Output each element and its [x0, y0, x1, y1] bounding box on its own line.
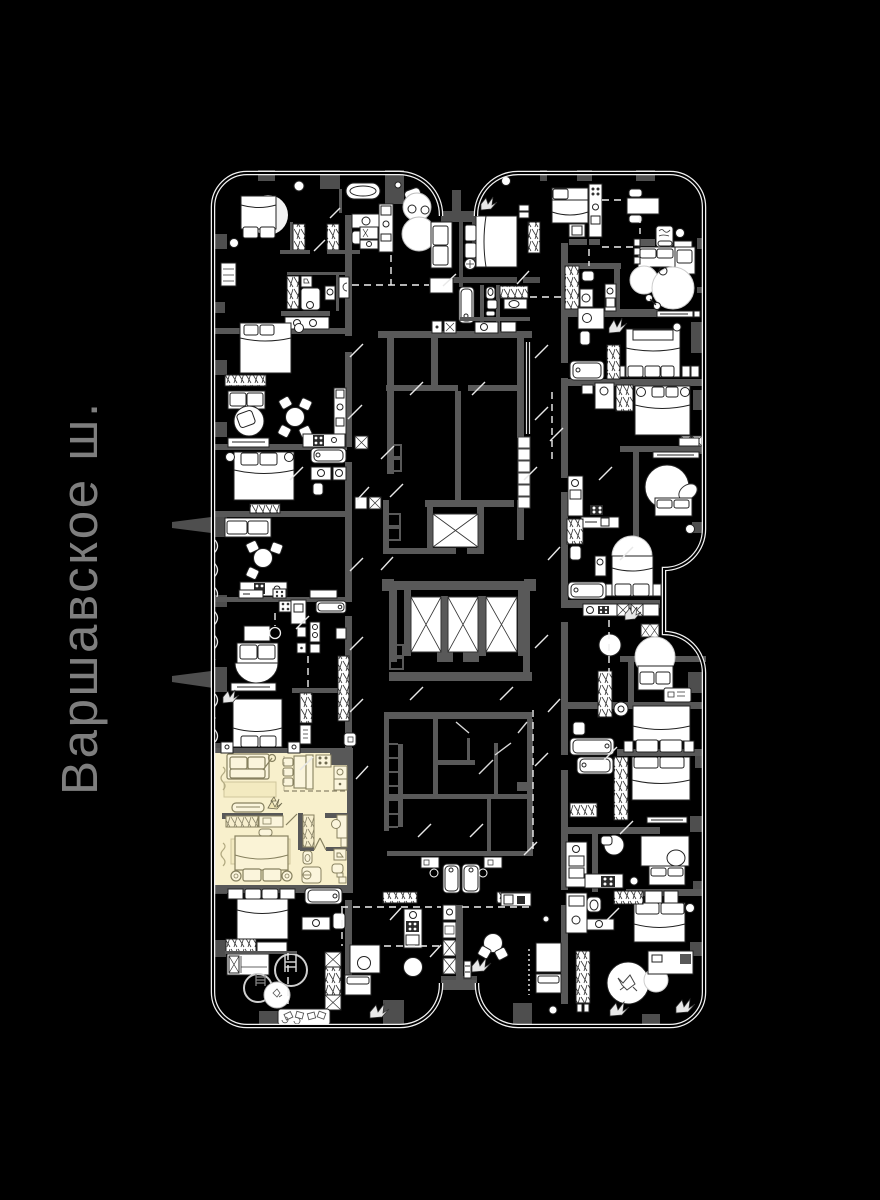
svg-text:Варшавское ш.: Варшавское ш. [51, 400, 108, 795]
